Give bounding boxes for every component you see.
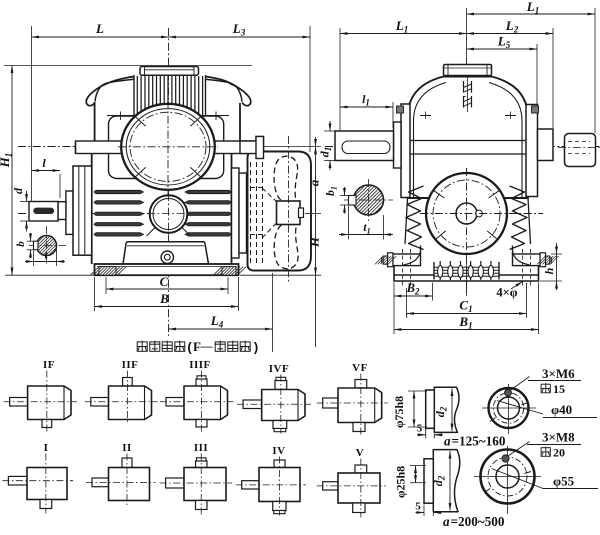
svg-text:15: 15: [553, 382, 565, 396]
svg-text:a: a: [443, 514, 450, 529]
svg-text:VF: VF: [352, 362, 368, 374]
svg-text:IIF: IIF: [122, 359, 139, 371]
svg-text:IF: IF: [43, 359, 55, 371]
svg-text:IVF: IVF: [269, 363, 289, 375]
svg-text:d: d: [11, 187, 25, 194]
svg-text:φ75h8: φ75h8: [392, 396, 406, 428]
svg-text:=125~160: =125~160: [452, 434, 506, 449]
svg-text:20: 20: [553, 446, 565, 460]
svg-text:φ25h8: φ25h8: [394, 466, 408, 498]
svg-text:II: II: [122, 442, 132, 454]
svg-text:b: b: [15, 241, 27, 247]
svg-text:a: a: [444, 434, 451, 449]
svg-text:h: h: [542, 267, 556, 274]
svg-text:3×M8: 3×M8: [542, 430, 575, 445]
svg-text:(: (: [187, 340, 192, 355]
svg-text:—: —: [200, 339, 214, 353]
svg-text:3×M6: 3×M6: [542, 366, 575, 381]
svg-text:I: I: [44, 442, 49, 454]
svg-text:): ): [254, 340, 258, 355]
svg-text:4×φ: 4×φ: [496, 286, 517, 300]
svg-text:a: a: [307, 179, 322, 186]
svg-text:IIIF: IIIF: [189, 359, 211, 371]
svg-text:5: 5: [417, 423, 423, 435]
svg-text:III: III: [194, 442, 208, 454]
svg-text:C: C: [160, 274, 169, 289]
svg-text:=200~500: =200~500: [451, 514, 505, 529]
svg-text:φ55: φ55: [553, 474, 575, 489]
svg-text:H: H: [307, 236, 322, 248]
svg-text:φ40: φ40: [551, 402, 572, 417]
svg-text:5: 5: [415, 501, 421, 513]
svg-text:IV: IV: [272, 445, 285, 457]
svg-text:V: V: [356, 447, 364, 459]
svg-text:L: L: [95, 21, 104, 36]
svg-text:B: B: [159, 291, 169, 306]
